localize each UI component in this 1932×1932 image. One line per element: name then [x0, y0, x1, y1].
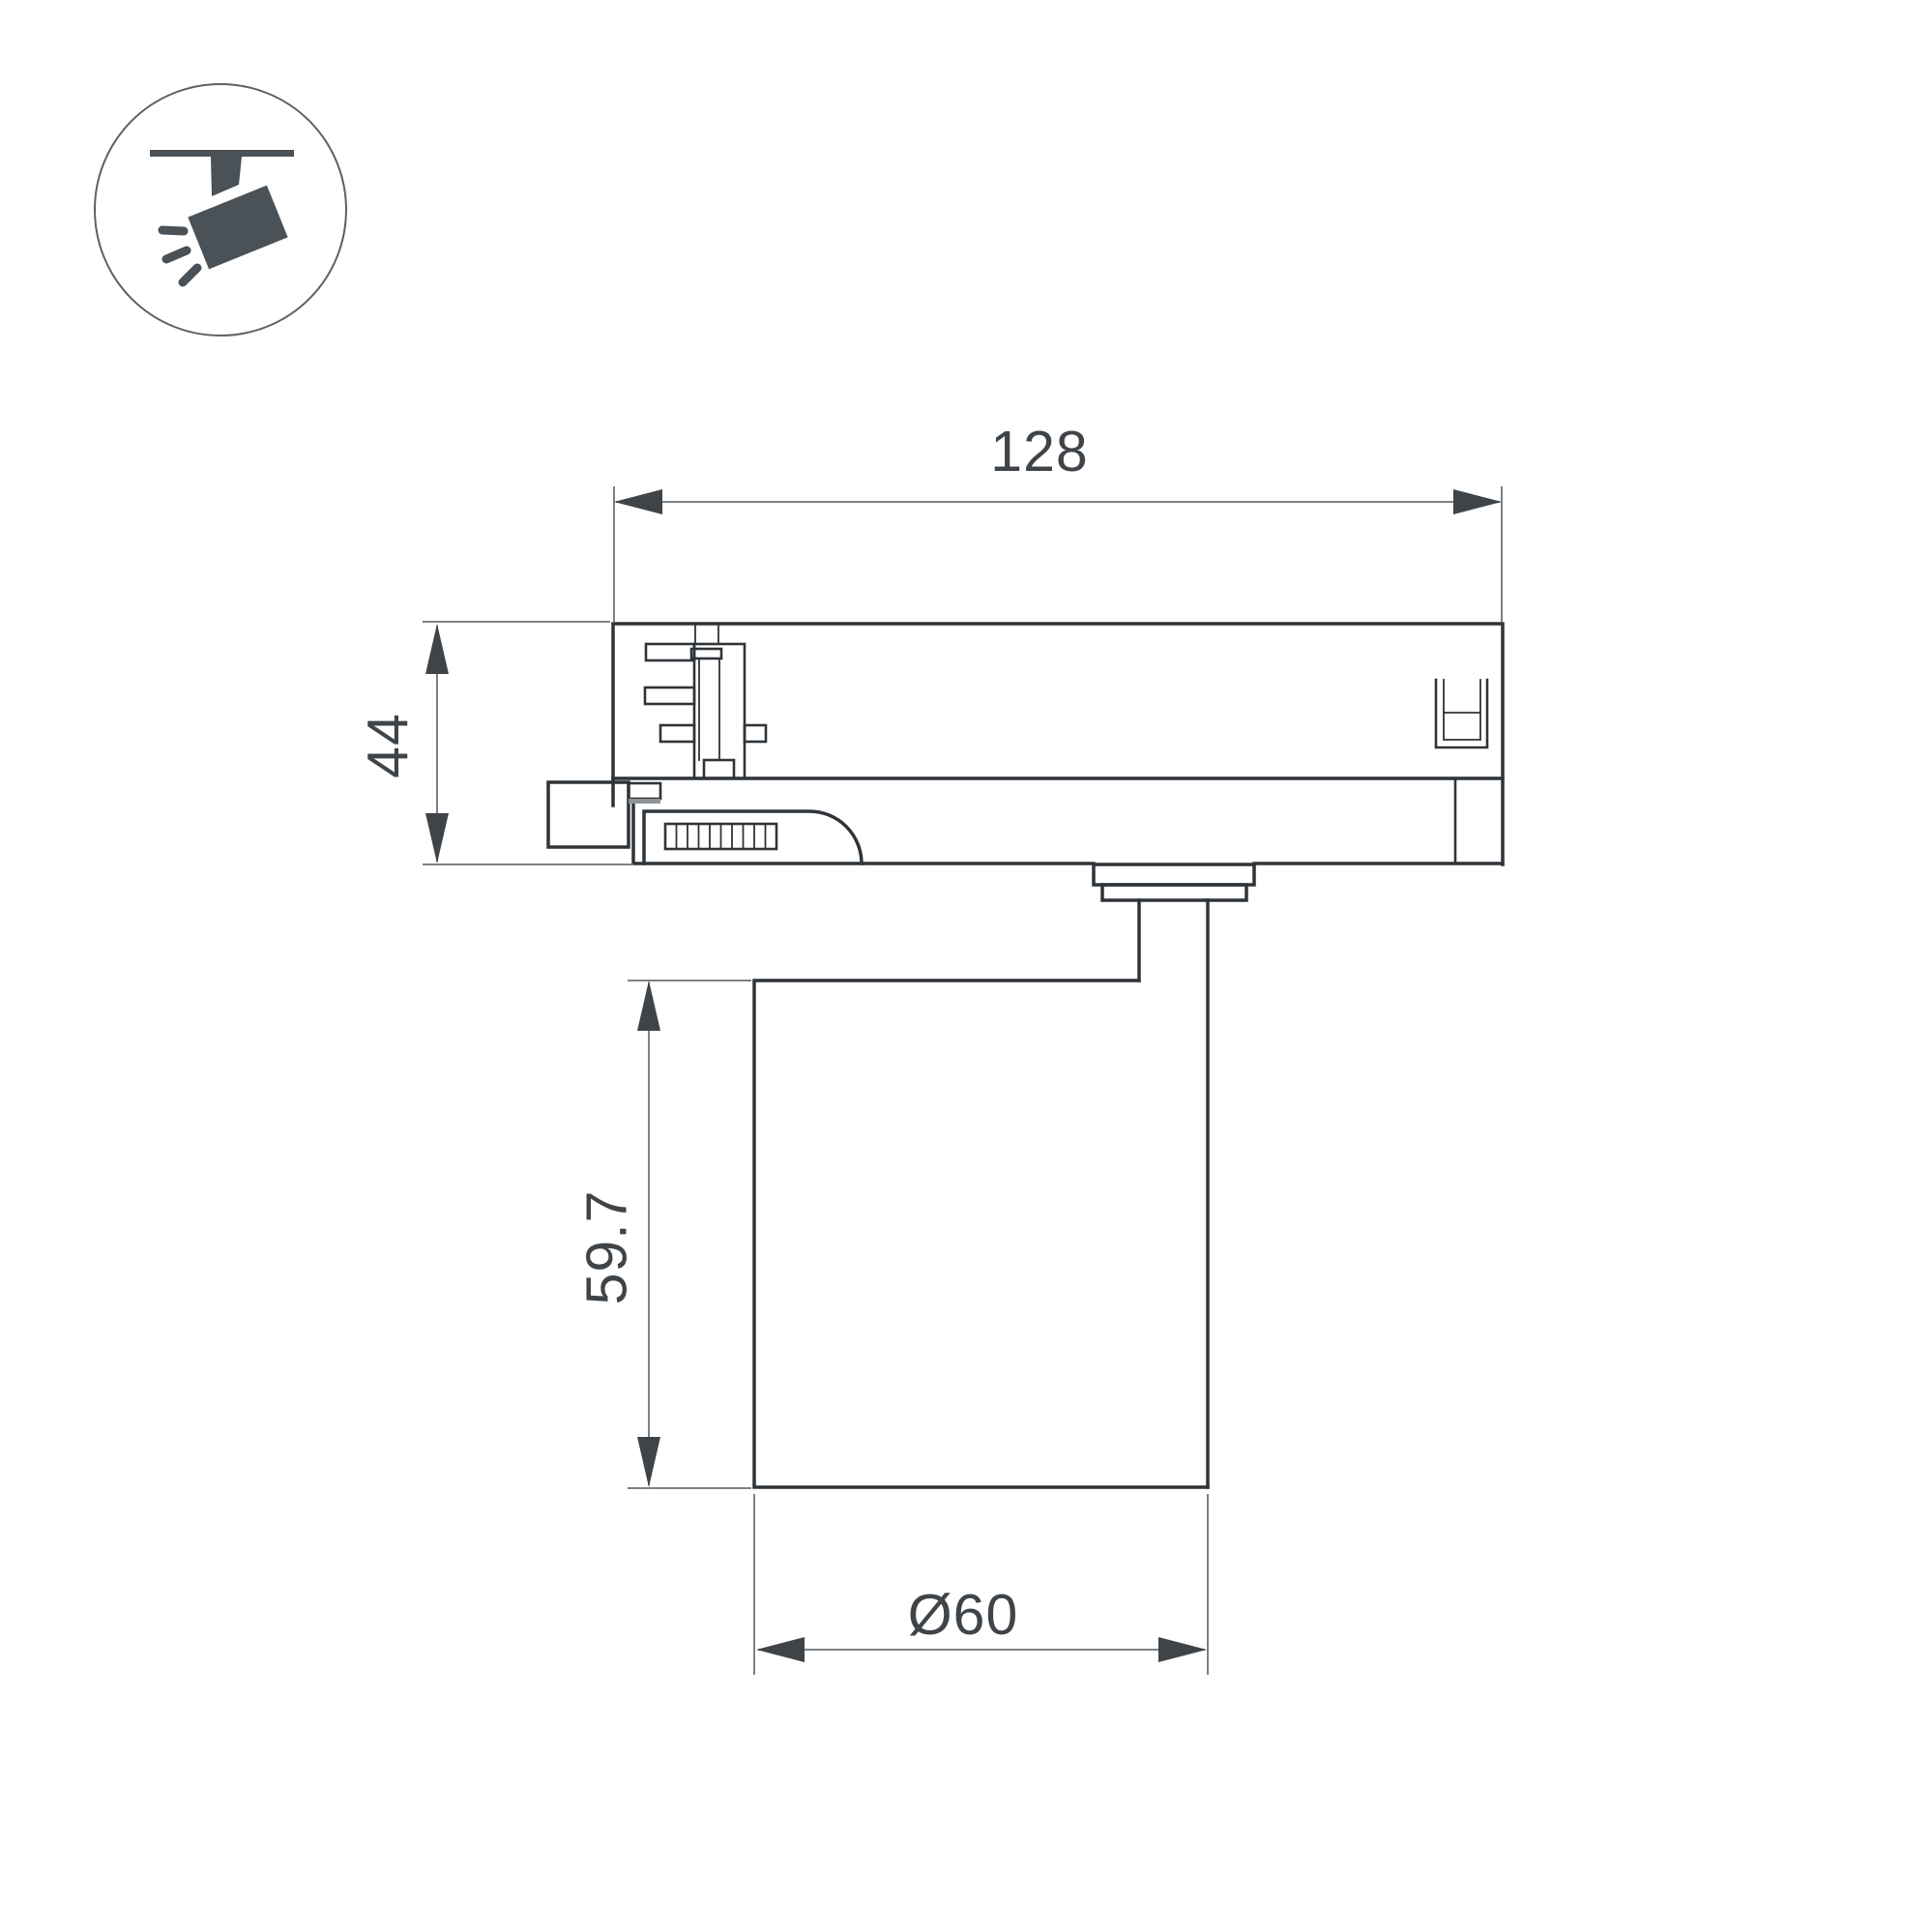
contact-prong-middle	[645, 688, 694, 704]
dim-label-head-height: 59.7	[575, 1190, 639, 1305]
arrowhead-down	[637, 1437, 660, 1487]
clip-inner	[1444, 680, 1480, 740]
slider-housing	[644, 811, 862, 864]
contact-assembly	[645, 624, 766, 778]
latch-spring	[629, 799, 660, 804]
mount-plate-lower	[1102, 885, 1246, 900]
arrowhead-right	[1453, 489, 1502, 514]
icon-light-ray	[162, 230, 184, 231]
swivel-mount	[1094, 864, 1254, 1487]
right-clip	[1436, 680, 1487, 747]
ratchet-teeth	[677, 824, 766, 849]
latch-tab	[629, 783, 660, 799]
arrowhead-right	[1158, 1637, 1207, 1662]
latch-box	[548, 782, 629, 847]
adapter-outline	[613, 624, 1503, 864]
dim-overall-width: 128	[614, 420, 1502, 622]
contact-prong-top	[646, 644, 694, 660]
contact-tab	[745, 725, 766, 742]
lamp-head-outline	[754, 981, 1208, 1487]
arrowhead-down	[425, 813, 449, 864]
dim-label-head-diameter: Ø60	[908, 1583, 1019, 1647]
contact-foot	[704, 760, 734, 778]
track-adapter-view	[548, 624, 1503, 1487]
icon-track-bar	[150, 150, 294, 157]
drawing-canvas: 128 44 59.7 Ø60	[0, 0, 1932, 1932]
contact-prong-bottom	[660, 725, 694, 742]
arrowhead-left	[756, 1637, 805, 1662]
arrowhead-left	[614, 489, 662, 514]
contact-screw-cap	[691, 649, 721, 659]
dim-adapter-height: 44	[357, 622, 633, 864]
dim-head-diameter: Ø60	[754, 1494, 1208, 1675]
dim-label-overall-width: 128	[990, 420, 1088, 483]
arrowhead-up	[637, 981, 660, 1031]
dim-label-adapter-height: 44	[357, 713, 421, 778]
dim-head-height: 59.7	[575, 981, 751, 1488]
mount-plate-upper	[1094, 864, 1254, 885]
dimension-drawing: 128 44 59.7 Ø60	[0, 0, 1932, 1932]
lamp-head-view	[754, 981, 1208, 1487]
track-light-icon	[95, 84, 346, 336]
arrowhead-up	[425, 624, 449, 674]
